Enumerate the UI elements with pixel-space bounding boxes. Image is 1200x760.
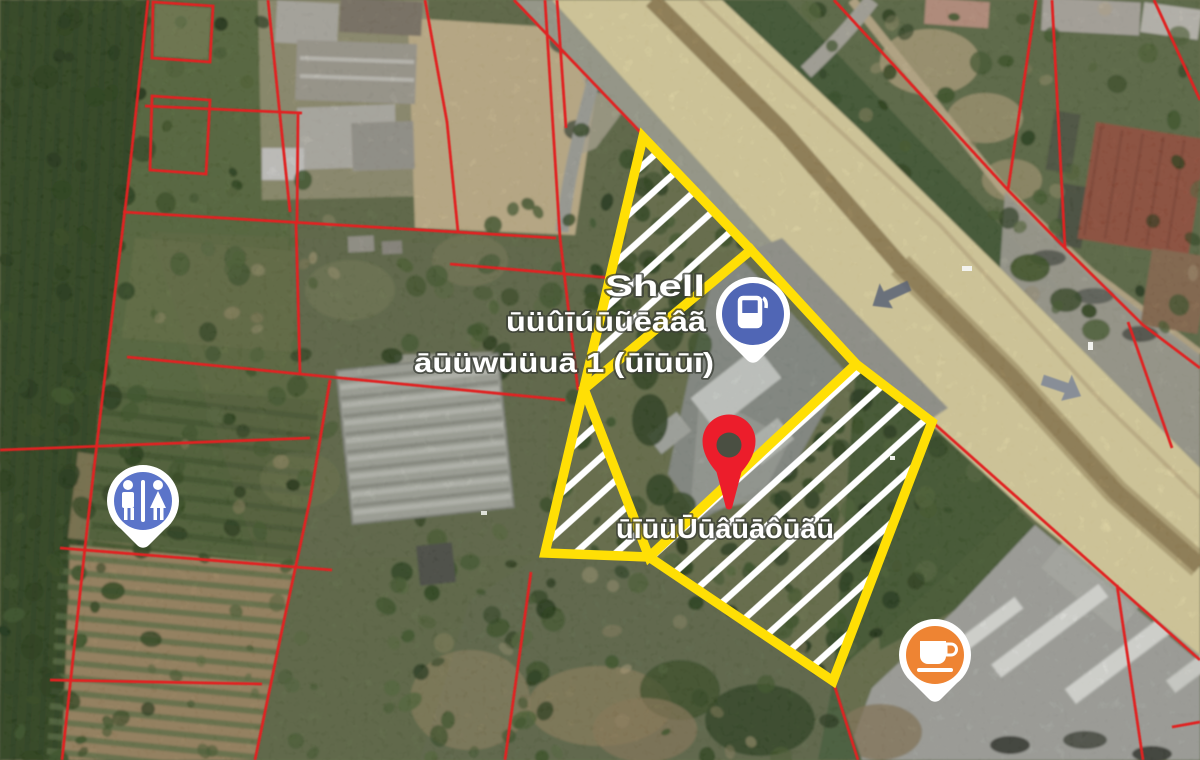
svg-text:ūīūüŪūâūāôūãū: ūīūüŪūâūāôūãū [616, 513, 834, 544]
svg-text:āūüwūüuā 1 (ūīūūī): āūüwūüuā 1 (ūīūūī) [414, 347, 714, 378]
svg-text:Shell: Shell [605, 270, 705, 303]
svg-text:ūüûīúūũēāâã: ūüûīúūũēāâã [506, 306, 706, 337]
